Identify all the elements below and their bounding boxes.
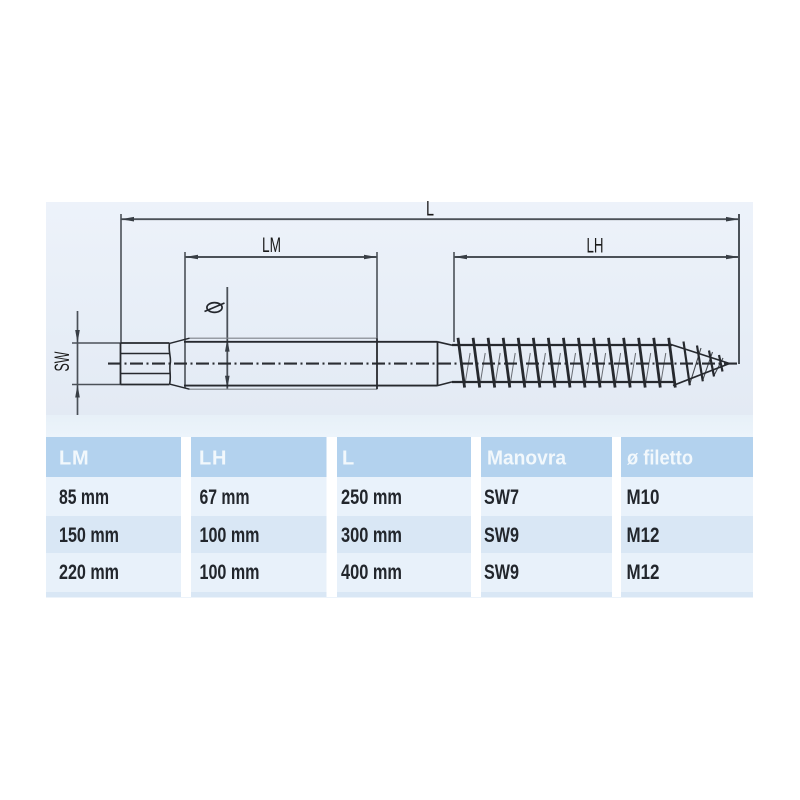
svg-text:220 mm: 220 mm (59, 561, 119, 584)
svg-text:SW9: SW9 (484, 561, 519, 584)
svg-text:Manovra: Manovra (487, 448, 567, 470)
svg-text:SW9: SW9 (484, 524, 519, 547)
svg-text:LM: LM (262, 234, 281, 257)
svg-text:L: L (342, 448, 355, 470)
svg-text:85 mm: 85 mm (59, 486, 109, 509)
svg-text:100 mm: 100 mm (200, 561, 260, 584)
svg-text:LH: LH (587, 235, 604, 258)
svg-text:LH: LH (199, 448, 227, 470)
svg-text:250 mm: 250 mm (341, 486, 402, 509)
svg-text:400 mm: 400 mm (341, 561, 402, 584)
svg-text:M12: M12 (627, 524, 660, 547)
svg-text:ø filetto: ø filetto (627, 448, 693, 470)
svg-text:M12: M12 (627, 561, 660, 584)
svg-text:150 mm: 150 mm (59, 524, 119, 547)
svg-text:67 mm: 67 mm (200, 486, 250, 509)
svg-text:SW7: SW7 (484, 486, 519, 509)
svg-text:M10: M10 (627, 486, 660, 509)
svg-text:LM: LM (59, 448, 89, 470)
svg-text:300 mm: 300 mm (341, 524, 402, 547)
svg-text:100 mm: 100 mm (200, 524, 260, 547)
svg-text:L: L (426, 198, 434, 221)
svg-text:SW: SW (51, 351, 74, 371)
